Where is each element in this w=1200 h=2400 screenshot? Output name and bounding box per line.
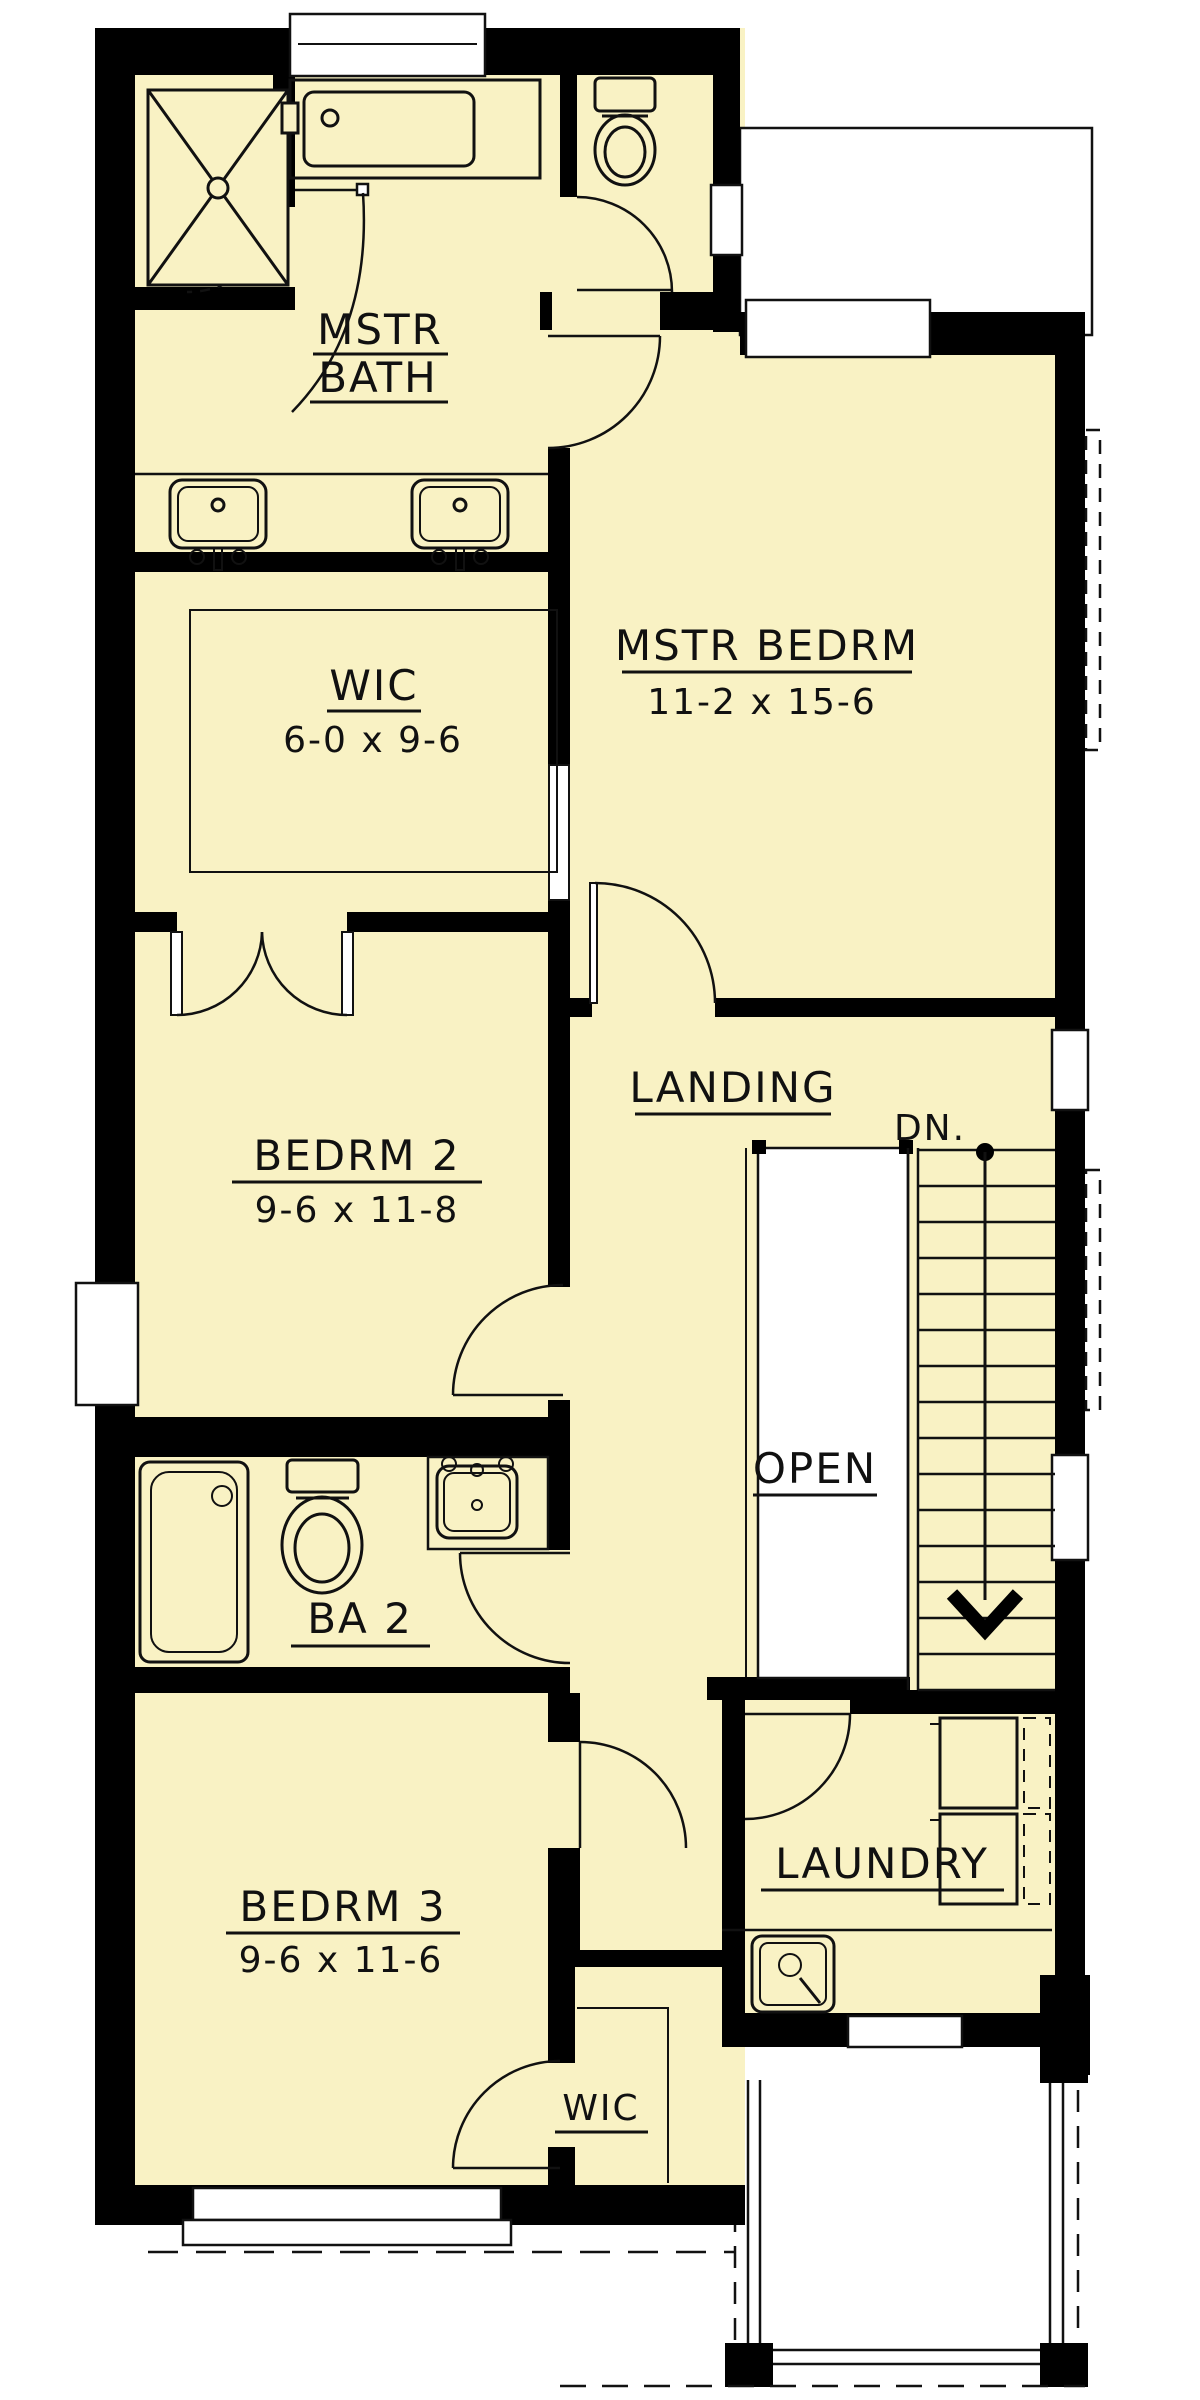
wall-bath-wic-divider <box>95 552 570 572</box>
bedrm2-label: BEDRM 2 <box>253 1131 460 1180</box>
wall-wc-east <box>713 28 740 332</box>
open-to-below-well <box>758 1148 908 1678</box>
window-wc-east <box>711 185 742 255</box>
wall-ba2-south <box>95 1667 570 1693</box>
wall-bedrm2-east-upper <box>548 932 570 1287</box>
wall-exterior-right-mid <box>1055 1110 1085 1455</box>
wall-wc-west <box>560 75 577 197</box>
mstr-bath-label-1: MSTR <box>317 305 443 354</box>
bedrm3-label: BEDRM 3 <box>239 1882 446 1931</box>
tub-ledge <box>282 103 298 133</box>
bedrm3-dims: 9-6 x 11-6 <box>239 1940 444 1981</box>
wall-bedrm2-south <box>95 1417 570 1457</box>
wall-wic-lower-west-stub <box>548 2147 575 2185</box>
wall-wic-east-upper <box>548 572 570 765</box>
floor-plan-drawing: MSTR BATH WIC 6-0 x 9-6 MSTR BEDRM 11-2 … <box>0 0 1200 2400</box>
wic-upper-dims: 6-0 x 9-6 <box>283 720 463 761</box>
window-mstr-bedrm-east-dashed <box>1086 430 1100 750</box>
ba2-label: BA 2 <box>307 1594 413 1643</box>
wic-lower-label: WIC <box>562 2088 639 2129</box>
window-landing-east <box>1052 1030 1088 1110</box>
wall-suite-east <box>660 292 740 330</box>
open-label: OPEN <box>753 1444 877 1493</box>
well-post-left <box>752 1140 766 1154</box>
window-stair-east-dashed <box>1086 1170 1100 1410</box>
wall-wic-lower-west-upper <box>548 1967 575 2063</box>
shower-drain <box>208 178 228 198</box>
window-mstr-bedrm-north <box>746 300 930 357</box>
wall-bedrm2-east-stub <box>548 1400 570 1417</box>
shower <box>148 90 288 285</box>
wall-wic-south-right <box>347 912 570 932</box>
mstr-bath-label-2: BATH <box>318 353 438 402</box>
door-leaf-wic-upper <box>549 765 569 900</box>
wall-shower-south <box>95 287 295 310</box>
wall-mstr-south <box>715 998 1057 1017</box>
door-leaf-closet-left <box>171 932 182 1015</box>
wall-laundry-north <box>850 1690 1055 1714</box>
window-stair-east-lower <box>1052 1455 1088 1560</box>
laundry-label: LAUNDRY <box>775 1839 989 1888</box>
mstr-bedrm-label: MSTR BEDRM <box>615 621 919 670</box>
landing-label: LANDING <box>629 1063 836 1112</box>
wall-ba2-east-upper <box>548 1457 570 1550</box>
window-bedrm3-south <box>193 2188 501 2220</box>
bedrm2-dims: 9-6 x 11-8 <box>255 1190 460 1231</box>
wall-mstr-south-stub <box>570 998 592 1017</box>
door-leaf-closet-right <box>342 932 353 1015</box>
wall-wic-south-left <box>95 912 177 932</box>
wall-exterior-left <box>95 28 135 2225</box>
deck-post-bottom-right <box>1040 2343 1088 2387</box>
wall-exterior-right-lower <box>1055 1560 1085 2045</box>
window-laundry-south <box>848 2016 962 2047</box>
mstr-bedrm-dims: 11-2 x 15-6 <box>647 682 877 723</box>
window-bedrm3-south-sill <box>183 2220 511 2245</box>
wall-corridor-west-lower <box>548 1848 580 1950</box>
deck-floor <box>745 2047 1085 2383</box>
wall-wic-lower-north <box>548 1950 745 1967</box>
wic-upper-label: WIC <box>329 661 418 710</box>
wall-exterior-right-upper <box>1055 312 1085 1030</box>
dn-label: DN. <box>894 1108 966 1149</box>
door-leaf-mstr-bedrm <box>590 883 597 1003</box>
floor-plan-page: MSTR BATH WIC 6-0 x 9-6 MSTR BEDRM 11-2 … <box>0 0 1200 2400</box>
deck-post-bottom-left <box>725 2343 773 2387</box>
window-bedrm2-west <box>76 1283 138 1405</box>
wall-corridor-west-upper <box>548 1693 580 1742</box>
wall-suite-stub-west <box>540 292 552 330</box>
